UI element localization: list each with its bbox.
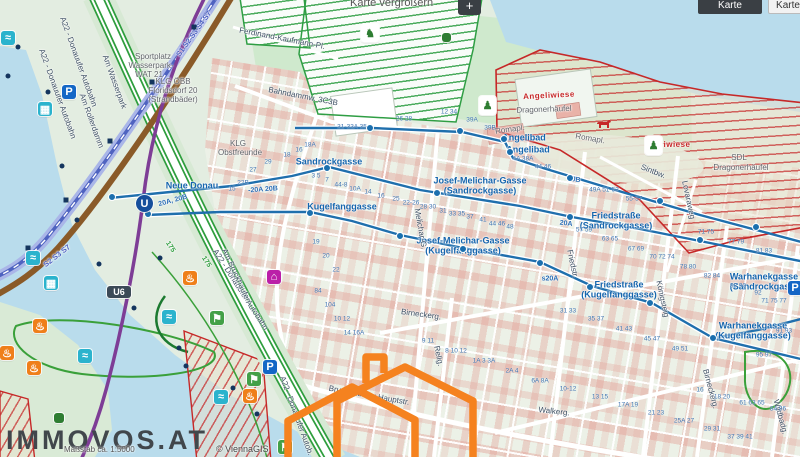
- zoom-hint-label: Karte vergrößern: [350, 0, 433, 9]
- map-layer-button-dark[interactable]: Karte: [698, 0, 762, 14]
- map-canvas[interactable]: SandrockgasseJosef-Melichar-Gasse(Sandro…: [0, 0, 800, 457]
- zoom-in-button[interactable]: +: [458, 0, 481, 15]
- immovos-logo-houses: [0, 0, 800, 457]
- map-scale-text: Maßstab ca. 1:5000: [64, 445, 135, 454]
- map-layer-button-light[interactable]: Karte: [768, 0, 800, 14]
- map-attribution: © ViennaGIS: [216, 444, 269, 454]
